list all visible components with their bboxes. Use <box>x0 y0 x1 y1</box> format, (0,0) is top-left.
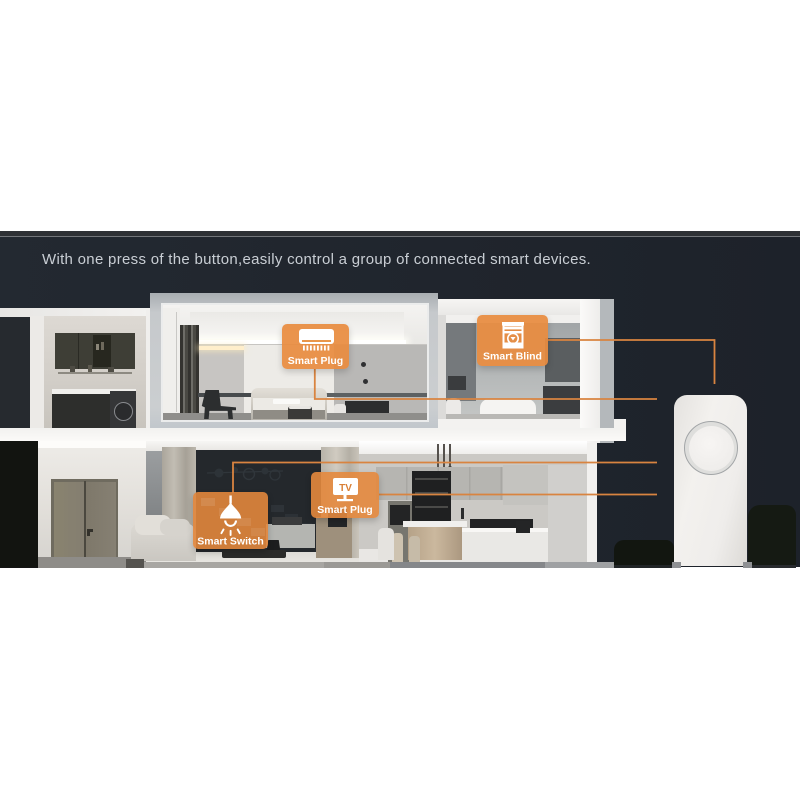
svg-text:Smart Switch: Smart Switch <box>197 536 264 548</box>
svg-text:TV: TV <box>339 483 352 494</box>
svg-text:Smart Plug: Smart Plug <box>317 504 372 516</box>
svg-text:Smart Plug: Smart Plug <box>288 355 343 367</box>
svg-text:Smart Blind: Smart Blind <box>483 351 542 363</box>
